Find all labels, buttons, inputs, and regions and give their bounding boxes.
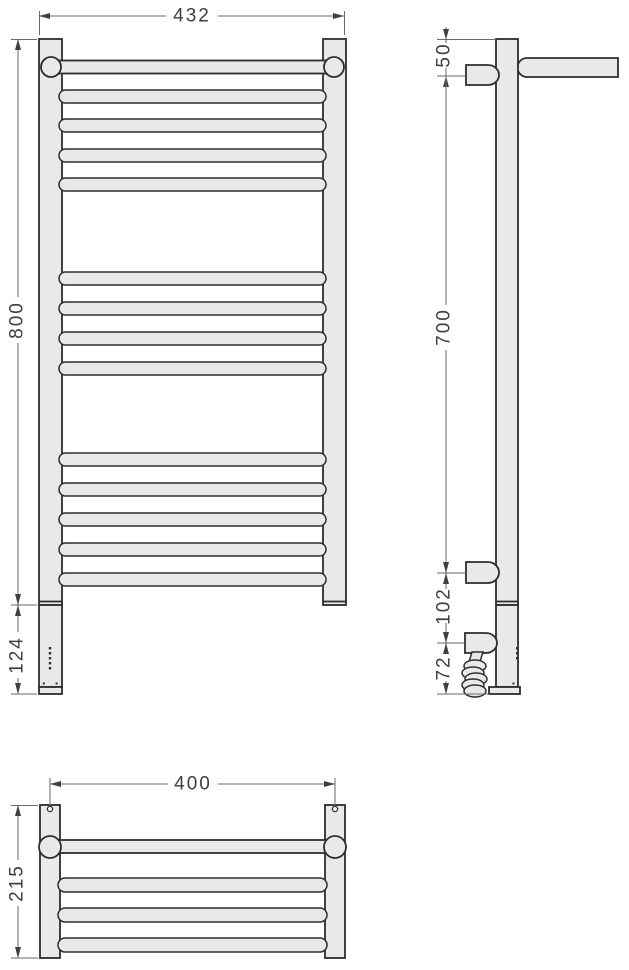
right-mounting-hole [332, 806, 337, 811]
towel-rung [58, 878, 327, 892]
arrowhead-down [443, 683, 449, 694]
top-left-pivot-boss [39, 836, 61, 858]
side-heater-offset-dimension: 72 [434, 643, 455, 694]
upper-wall-bracket [466, 65, 499, 85]
towel-rung [59, 149, 326, 162]
top-right-pivot-boss [324, 836, 346, 858]
front-rung-group-3 [59, 453, 326, 586]
arrowhead-up [15, 39, 21, 50]
technical-drawing-towel-rail: 432 800 124 [0, 0, 629, 970]
front-width-dimension: 432 [39, 6, 345, 36]
towel-rung [59, 483, 326, 496]
front-height-dimension: 800 [7, 39, 38, 605]
arrowhead-right [324, 781, 335, 787]
top-depth-label: 215 [7, 864, 28, 902]
towel-rung [59, 119, 326, 132]
towel-rung [59, 90, 326, 103]
top-rungs [58, 878, 327, 952]
towel-rung [59, 178, 326, 191]
towel-rung [59, 332, 326, 345]
side-post [496, 39, 518, 605]
front-heater-section [39, 605, 62, 687]
side-top-offset-dimension: 50 [434, 27, 455, 87]
top-view: 400 215 [7, 774, 347, 959]
front-height-label: 800 [7, 301, 28, 339]
arrowhead-left [39, 13, 50, 19]
arrowhead-down [15, 683, 21, 694]
heating-element [465, 633, 497, 653]
towel-rung [58, 908, 327, 922]
arrowhead-down [443, 632, 449, 643]
top-mounting-width-label: 400 [174, 774, 212, 795]
arrowhead-up [15, 805, 21, 816]
front-lower-section-dimension: 124 [7, 605, 38, 694]
side-heater-offset-label: 72 [434, 655, 455, 680]
arrowhead-up [443, 643, 449, 654]
towel-rung [59, 573, 326, 586]
front-heater-end-cap [39, 687, 62, 694]
front-shelf-bar [51, 61, 334, 74]
side-bracket-spacing-dimension: 700 [434, 76, 455, 573]
towel-rung [59, 302, 326, 315]
towel-rung [59, 543, 326, 556]
side-view: 50 700 102 72 [434, 27, 619, 697]
towel-rung [59, 513, 326, 526]
power-cable-coil [462, 652, 487, 697]
arrowhead-down [443, 562, 449, 573]
side-heater-section [496, 605, 518, 687]
side-lower-offset-label: 102 [434, 587, 455, 625]
lower-wall-bracket [466, 562, 499, 583]
front-rung-group-1 [59, 90, 326, 191]
arrowhead-down [443, 29, 449, 40]
arrowhead-up [443, 573, 449, 584]
top-depth-dimension: 215 [7, 805, 39, 958]
top-right-post [325, 805, 345, 958]
top-shelf-bar [50, 840, 335, 853]
side-heater-end-cap [489, 687, 520, 694]
front-view: 432 800 124 [7, 6, 347, 695]
side-shelf-bar [518, 58, 618, 77]
top-left-post [40, 805, 60, 958]
front-left-pivot-boss [41, 57, 61, 77]
front-lower-section-label: 124 [7, 636, 28, 674]
towel-rung [59, 272, 326, 285]
arrowhead-down [15, 947, 21, 958]
arrowhead-down [15, 594, 21, 605]
towel-rung [59, 362, 326, 375]
towel-rung [59, 453, 326, 466]
arrowhead-right [333, 13, 344, 19]
side-top-offset-label: 50 [434, 42, 455, 67]
left-mounting-hole [47, 806, 52, 811]
side-bracket-spacing-label: 700 [434, 308, 455, 346]
drawing-canvas: 432 800 124 [0, 0, 629, 970]
front-width-label: 432 [173, 6, 211, 27]
arrowhead-up [15, 605, 21, 616]
top-mounting-width-dimension: 400 [50, 774, 335, 807]
side-lower-offset-dimension: 102 [434, 573, 455, 643]
arrowhead-left [50, 781, 61, 787]
front-rung-group-2 [59, 272, 326, 375]
towel-rung [58, 938, 327, 952]
front-right-pivot-boss [324, 57, 344, 77]
